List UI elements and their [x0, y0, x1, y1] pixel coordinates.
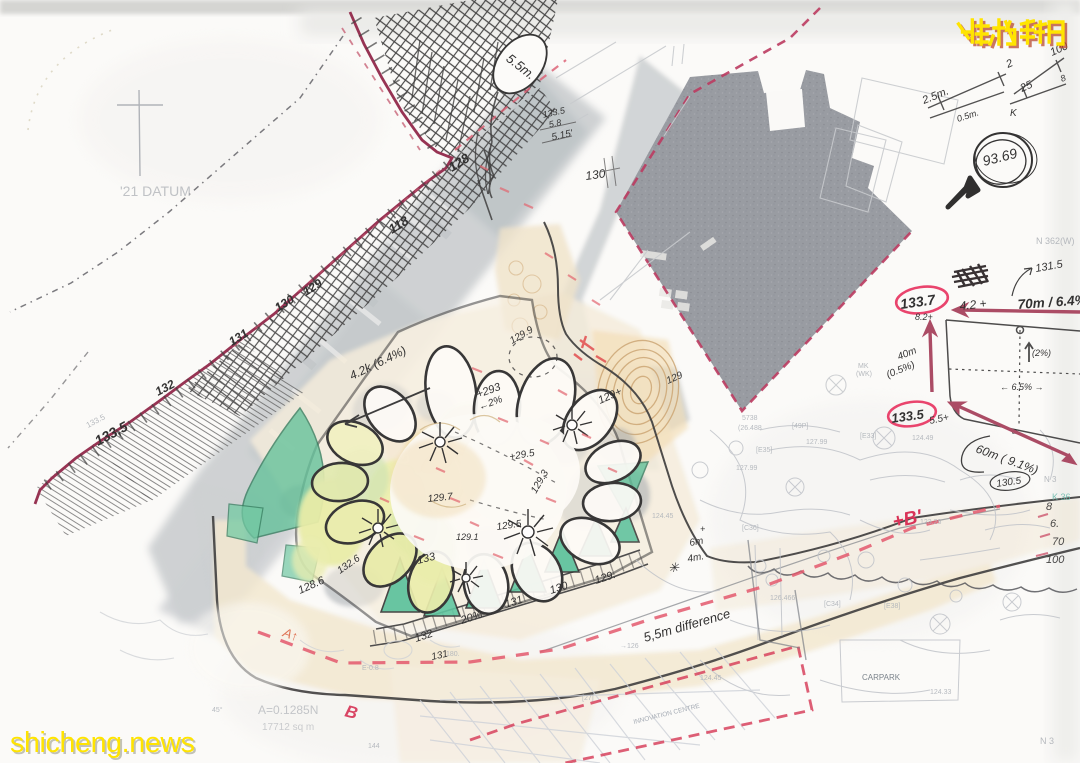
svg-text:shicheng.news: shicheng.news — [10, 727, 195, 759]
